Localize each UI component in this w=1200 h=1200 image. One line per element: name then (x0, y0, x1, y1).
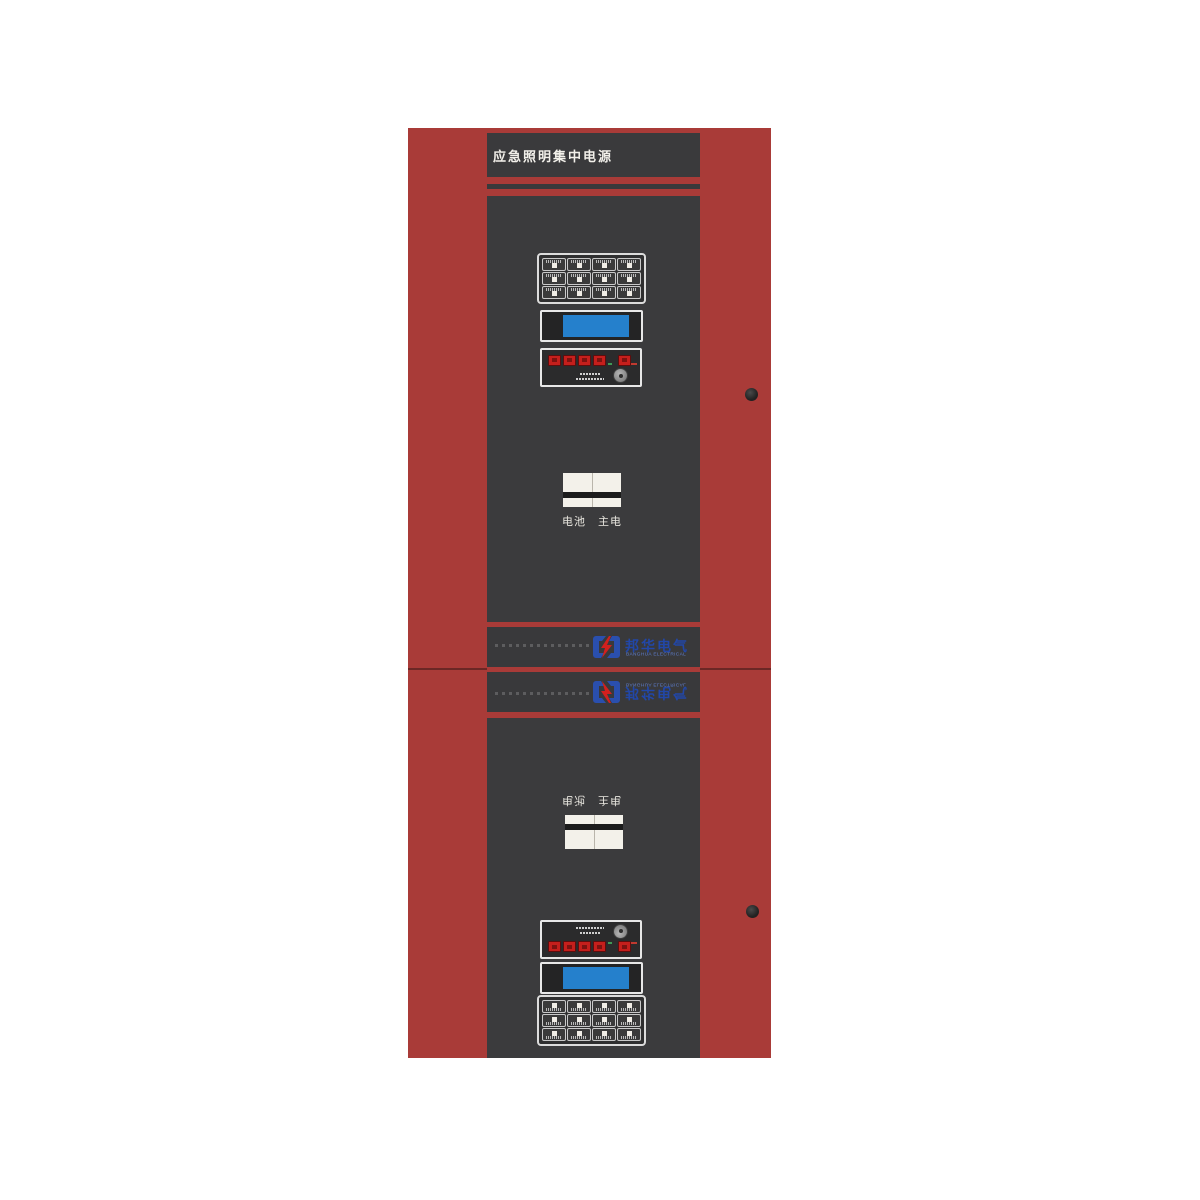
keypad-button[interactable] (542, 1000, 566, 1013)
lower-breaker-switch (565, 815, 623, 849)
keypad-button-indicator (602, 1003, 607, 1008)
brand-lightning-icon (593, 681, 620, 703)
keypad-button-label (621, 1036, 637, 1039)
keypad-button-indicator (577, 1031, 582, 1036)
keypad-button-indicator (627, 291, 632, 296)
keypad-button-indicator (627, 1017, 632, 1022)
keypad-button[interactable] (567, 1014, 591, 1027)
mains-breaker-rocker[interactable] (592, 473, 621, 507)
mains-label: 主电 (598, 513, 622, 529)
screw-hole (746, 905, 759, 918)
keypad-button-indicator (552, 291, 557, 296)
keypad-button-indicator (627, 277, 632, 282)
keypad-button[interactable] (542, 272, 566, 285)
keypad-button-indicator (552, 263, 557, 268)
control-caption-line (576, 378, 604, 380)
keypad-button-indicator (602, 263, 607, 268)
battery-breaker-rocker[interactable] (563, 473, 592, 507)
keypad-button[interactable] (592, 258, 616, 271)
faint-dashes (495, 644, 590, 647)
keypad-button-indicator (552, 277, 557, 282)
keypad-button-indicator (627, 1003, 632, 1008)
red-function-button[interactable] (578, 355, 591, 366)
keypad-button-label (596, 1022, 612, 1025)
keypad-button-label (596, 1008, 612, 1011)
keypad-button[interactable] (617, 1028, 641, 1041)
breaker-band (565, 824, 623, 830)
red-function-button[interactable] (548, 941, 561, 952)
keypad-button[interactable] (592, 272, 616, 285)
red-function-button[interactable] (548, 355, 561, 366)
keypad-button-label (546, 1008, 562, 1011)
lower-lcd-panel (540, 962, 643, 994)
keypad-button[interactable] (617, 1000, 641, 1013)
keypad-button-indicator (602, 291, 607, 296)
red-function-button[interactable] (593, 941, 606, 952)
keypad-button-indicator (602, 1031, 607, 1036)
lcd-screen (563, 315, 629, 337)
status-mark-green (608, 942, 612, 944)
breaker-band (563, 492, 621, 498)
breaker-labels: 电池 主电 (532, 513, 652, 529)
keypad-button-indicator (577, 277, 582, 282)
keypad-button-indicator (627, 263, 632, 268)
keypad-button-label (571, 1008, 587, 1011)
keypad-button-label (571, 1022, 587, 1025)
page: 应急照明集中电源 电池 主电 (0, 0, 1200, 1200)
keypad-button[interactable] (617, 286, 641, 299)
keypad-button-indicator (577, 263, 582, 268)
title-bar: 应急照明集中电源 (487, 133, 700, 177)
keypad-button[interactable] (617, 272, 641, 285)
status-mark-red (630, 942, 637, 944)
cabinet-title: 应急照明集中电源 (487, 146, 613, 165)
upper-keypad (537, 253, 646, 304)
keypad-button-indicator (552, 1003, 557, 1008)
battery-label: 电池 (562, 793, 586, 809)
red-function-button[interactable] (618, 941, 631, 952)
battery-breaker-rocker[interactable] (565, 815, 594, 849)
control-caption-line (580, 373, 600, 375)
key-switch-knob[interactable] (613, 924, 628, 939)
control-caption-line (580, 932, 600, 934)
keypad-button-indicator (577, 291, 582, 296)
keypad-button-indicator (602, 277, 607, 282)
lower-keypad (537, 995, 646, 1046)
keypad-button-indicator (577, 1017, 582, 1022)
keypad-button-label (546, 1036, 562, 1039)
brand-lightning-icon (593, 636, 620, 658)
keypad-button-label (546, 1022, 562, 1025)
red-function-button[interactable] (593, 355, 606, 366)
breaker-labels-flipped: 电池 主电 (532, 793, 652, 809)
keypad-button[interactable] (617, 1014, 641, 1027)
lower-control-strip (540, 920, 642, 959)
keypad-button[interactable] (567, 272, 591, 285)
cabinet-body: 应急照明集中电源 电池 主电 (408, 128, 771, 1058)
upper-breaker-switch (563, 473, 621, 507)
red-function-button[interactable] (563, 941, 576, 952)
keypad-button-indicator (552, 1031, 557, 1036)
battery-label: 电池 (562, 513, 586, 529)
mains-breaker-rocker[interactable] (594, 815, 623, 849)
keypad-button[interactable] (542, 286, 566, 299)
screw-hole (745, 388, 758, 401)
header-strip (487, 184, 700, 189)
keypad-button[interactable] (592, 1000, 616, 1013)
logo-band-lower: 邦华电气 BANGHUA ELECTRICAL (487, 672, 700, 712)
brand-logo-flipped: 邦华电气 BANGHUA ELECTRICAL (487, 672, 700, 712)
keypad-button[interactable] (567, 1000, 591, 1013)
brand-name-en: BANGHUA ELECTRICAL (626, 682, 686, 687)
keypad-button[interactable] (542, 1028, 566, 1041)
faint-dashes (495, 692, 590, 695)
keypad-button[interactable] (542, 258, 566, 271)
brand-name-en: BANGHUA ELECTRICAL (626, 652, 686, 657)
status-mark-red (630, 363, 637, 365)
seam-line (700, 668, 771, 670)
mains-label: 主电 (598, 793, 622, 809)
lcd-screen (563, 967, 629, 989)
keypad-button[interactable] (567, 286, 591, 299)
keypad-button-indicator (627, 1031, 632, 1036)
keypad-button-label (596, 1036, 612, 1039)
keypad-button-indicator (552, 1017, 557, 1022)
keypad-button[interactable] (542, 1014, 566, 1027)
keypad-button[interactable] (617, 258, 641, 271)
red-function-button[interactable] (578, 941, 591, 952)
key-switch-knob[interactable] (613, 368, 628, 383)
keypad-button[interactable] (592, 1028, 616, 1041)
status-mark-green (608, 363, 612, 365)
seam-line (408, 668, 487, 670)
control-caption-line (576, 927, 604, 929)
keypad-button-indicator (602, 1017, 607, 1022)
logo-band-upper: 邦华电气 BANGHUA ELECTRICAL (487, 627, 700, 667)
keypad-button-indicator (577, 1003, 582, 1008)
keypad-button-label (571, 1036, 587, 1039)
keypad-button-label (621, 1022, 637, 1025)
keypad-button[interactable] (567, 1028, 591, 1041)
upper-control-strip (540, 348, 642, 387)
red-function-button[interactable] (618, 355, 631, 366)
brand-logo: 邦华电气 BANGHUA ELECTRICAL (487, 627, 700, 667)
keypad-button[interactable] (567, 258, 591, 271)
keypad-button-label (621, 1008, 637, 1011)
upper-lcd-panel (540, 310, 643, 342)
keypad-button[interactable] (592, 286, 616, 299)
keypad-button[interactable] (592, 1014, 616, 1027)
red-function-button[interactable] (563, 355, 576, 366)
